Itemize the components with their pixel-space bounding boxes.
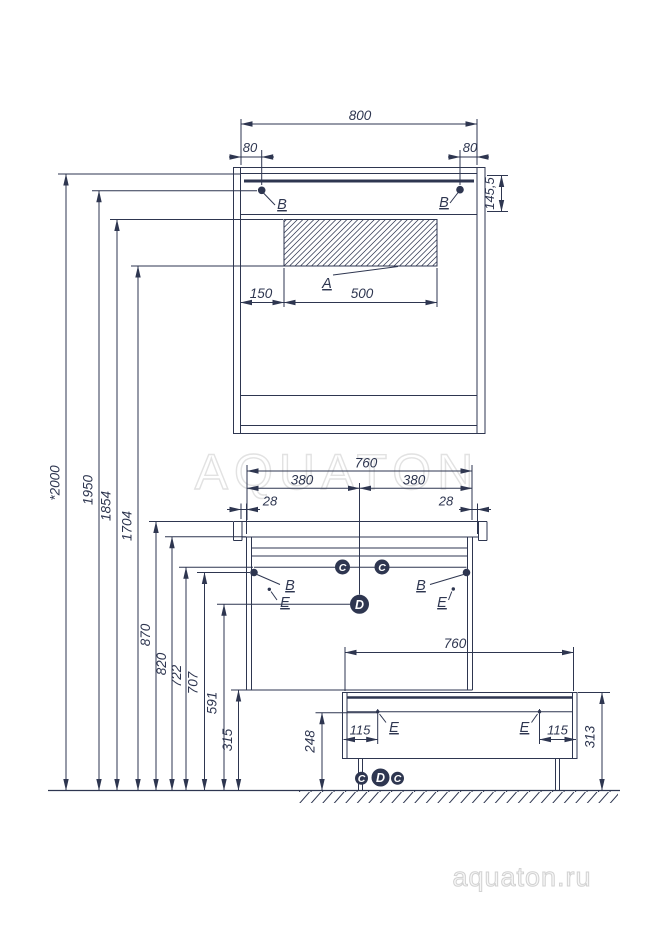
dim-820: 820 [154,652,169,675]
base-unit-dimensions: 760 115 115 E E 248 313 [303,636,611,791]
vanity-mount-hole-right [463,569,471,577]
dim-248: 248 [303,730,318,754]
vanity-e-point-left [268,588,271,591]
mount-hole-left [258,187,266,195]
dim-591: 591 [205,692,220,715]
vanity-e-point-right [452,587,455,590]
floor-hatch [299,791,618,803]
mirror-glass-hatch [284,220,437,267]
dim-707: 707 [186,671,201,694]
dim-760-base: 760 [444,636,467,651]
dim-500: 500 [351,286,374,301]
floor-marker-c-left-text: C [358,773,366,785]
label-e-vanity-left: E [280,595,290,611]
dim-380-right: 380 [403,473,426,488]
label-b-mirror-left: B [277,197,287,213]
mount-hole-right [456,186,464,194]
dim-145-5: 145,5 [482,176,497,209]
marker-d-text: D [355,598,364,612]
dim-28-right: 28 [438,494,454,509]
dim-870: 870 [138,623,153,646]
dim-1704: 1704 [120,511,135,541]
dim-28-left: 28 [262,494,278,509]
dim-313: 313 [583,725,598,748]
watermark-corner-text: aquaton.ru [452,862,591,892]
dim-1950: 1950 [81,474,96,505]
floor: C D C [48,769,620,804]
dim-80-left: 80 [243,140,258,155]
watermark-center-text: AQUATON [195,444,480,500]
floor-marker-d-text: D [376,771,385,785]
floor-marker-c-right-text: C [394,773,402,785]
technical-drawing-sheet: AQUATON aquaton.ru 800 80 80 [0,0,653,928]
watermark-center: AQUATON [195,444,480,500]
label-b-mirror-right: B [439,195,449,211]
dim-315: 315 [220,728,235,751]
dim-380-left: 380 [291,473,314,488]
dim-115-right: 115 [547,723,568,738]
marker-c-left-text: C [339,562,347,574]
label-b-vanity-left: B [285,578,295,594]
dim-800: 800 [349,108,372,123]
watermark-corner: aquaton.ru [452,862,591,892]
dim-115-left: 115 [350,723,371,738]
dim-760-top: 760 [355,456,378,471]
dim-80-right: 80 [463,140,478,155]
mirror-cabinet-dimensions: 800 80 80 145,5 150 500 A B B [229,108,508,307]
dim-2000: *2000 [48,465,63,501]
dim-722: 722 [169,664,184,687]
label-e-base-left: E [389,720,399,736]
label-e-vanity-right: E [437,595,447,611]
marker-c-right-text: C [378,562,386,574]
label-a-mirror: A [321,276,332,292]
label-b-vanity-right: B [416,578,426,594]
label-e-base-right: E [520,720,530,736]
vanity-mount-hole-left [250,569,258,577]
drawing-svg: AQUATON aquaton.ru 800 80 80 [0,0,653,928]
dim-150: 150 [250,286,273,301]
dim-1854: 1854 [99,491,114,521]
